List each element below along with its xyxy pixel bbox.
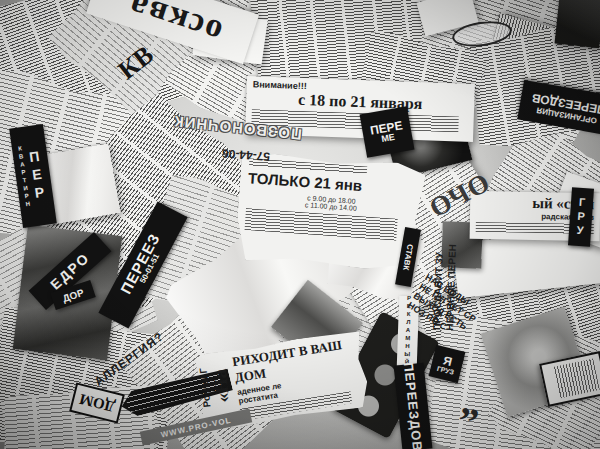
dor-label: ДОР [61, 286, 85, 303]
roman-vertical-text: Роман Г «На [196, 355, 235, 418]
micro-text-lines [553, 359, 599, 399]
gru-label: ГРУ [574, 196, 589, 239]
gruz-label: ГРУЗ [436, 364, 454, 375]
dom-label: ДОМ [77, 390, 116, 415]
stavk-label: СТАВК [401, 243, 414, 271]
newspaper-collage-photo: осква КВ КВАРТИРН ПЕР Внимание!!! с 18 п… [0, 0, 600, 449]
pere-box-line2: МЕ [381, 132, 396, 143]
corner-dark-photo [555, 0, 600, 48]
pereezdov-label: ПЕРЕЕЗДОВ [401, 361, 425, 449]
only21-clipping: ТОЛЬКО 21 янв с 9.00 до 18.00 с 11.00 до… [234, 152, 426, 273]
gru-banner: ГРУ [568, 187, 594, 246]
pere-box-banner: ПЕРЕ МЕ [360, 106, 415, 158]
proslavit-block: ПРОСЛАВИТ ЗУ НЕРВНОЕ ПЕРЕН [430, 210, 460, 331]
